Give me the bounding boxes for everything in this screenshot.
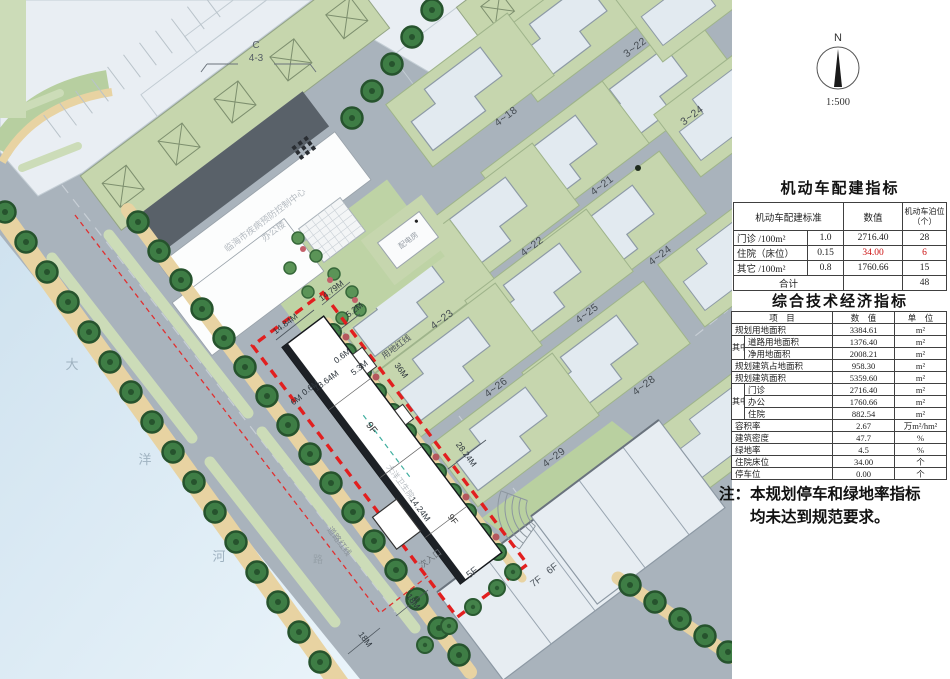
north-arrow: N 1:500 [802,26,874,110]
cell: 门诊 [745,384,833,396]
cell: % [895,444,947,456]
cell: 合计 [734,276,844,291]
river-name-char: 洋 [138,452,151,467]
scale-label: 1:500 [826,97,850,108]
table-row: 规划用地面积 3384.61 m² [732,324,947,336]
cell: 2716.40 [833,384,895,396]
note-body: 本规划停车和绿地率指标 均未达到规范要求。 [750,483,921,530]
cell: m² [895,396,947,408]
cell: m² [895,384,947,396]
cell: 0.8 [808,261,844,276]
cell: 个 [895,468,947,480]
cell: % [895,432,947,444]
cell: 道路用地面积 [745,336,833,348]
cell: 0.00 [833,468,895,480]
cell: 容积率 [732,420,833,432]
cell: 48 [903,276,947,291]
parking-table-title: 机动车配建指标 [732,177,948,198]
cell: 住院 [745,408,833,420]
river-name-char: 大 [65,357,78,372]
cell: 规划建筑占地面积 [732,360,833,372]
cell: m² [895,336,947,348]
cell: 规划用地面积 [732,324,833,336]
svg-text:C: C [252,40,259,51]
cell: 882.54 [833,408,895,420]
river-name-char: 河 [212,549,225,564]
cell: 机动车配建标准 [734,203,844,231]
cell: 办公 [745,396,833,408]
cell: 1376.40 [833,336,895,348]
cell: 34.00 [833,456,895,468]
cell: 单 位 [895,312,947,324]
cell: 2.67 [833,420,895,432]
table-row: 其它 /100m² 0.8 1760.66 15 [734,261,947,276]
cell: 0.15 [808,246,844,261]
plan-note: 注： 本规划停车和绿地率指标 均未达到规范要求。 [719,483,947,530]
cell: 2716.40 [844,231,903,246]
table-header-row: 机动车配建标准 数值 机动车泊位 （个） [734,203,947,231]
cell: m² [895,360,947,372]
cell: 其它 /100m² [734,261,808,276]
table-row: 其中 道路用地面积 1376.40 m² [732,336,947,348]
cell: 1760.66 [844,261,903,276]
economic-table: 项 目 数 值 单 位 规划用地面积 3384.61 m² 其中 道路用地面积 … [731,311,947,480]
table-row: 停车位 0.00 个 [732,468,947,480]
cell: 数值 [844,203,903,231]
north-label: N [834,32,842,44]
cell: 15 [903,261,947,276]
cell: 6 [903,246,947,261]
table-row: 办公 1760.66 m² [732,396,947,408]
site-plan-map: 配电房 临海市疾病预防控制中心 办公楼 [0,0,732,679]
table-row: 住院 882.54 m² [732,408,947,420]
road-name-char: 路 [313,553,323,566]
cell: 1.0 [808,231,844,246]
site-plan-sheet: 配电房 临海市疾病预防控制中心 办公楼 [0,0,950,679]
cell: 机动车泊位 （个） [903,203,947,231]
cell: 门诊 /100m² [734,231,808,246]
economic-table-title: 综合技术经济指标 [732,290,948,311]
cell: 停车位 [732,468,833,480]
cell: 958.30 [833,360,895,372]
table-row: 绿地率 4.5 % [732,444,947,456]
cell: 34.00 [844,246,903,261]
table-row: 规划建筑占地面积 958.30 m² [732,360,947,372]
cell: 建筑密度 [732,432,833,444]
cell: 1760.66 [833,396,895,408]
cell: 其中 [732,336,745,360]
cell: 数 值 [833,312,895,324]
cell: 其中 [732,384,745,420]
tree-symbol [635,165,641,171]
cell: m² [895,324,947,336]
cell: m² [895,408,947,420]
cell: 净用地面积 [745,348,833,360]
cell: m² [895,348,947,360]
table-row: 住院（床位） 0.15 34.00 6 [734,246,947,261]
cell: 绿地率 [732,444,833,456]
table-row: 建筑密度 47.7 % [732,432,947,444]
cell: 3384.61 [833,324,895,336]
table-row: 规划建筑面积 5359.60 m² [732,372,947,384]
svg-text:4-3: 4-3 [249,53,264,64]
cell: 规划建筑面积 [732,372,833,384]
cell: 28 [903,231,947,246]
note-prefix: 注： [719,483,750,530]
cell: 住院床位 [732,456,833,468]
table-row: 容积率 2.67 万m²/hm² [732,420,947,432]
table-header-row: 项 目 数 值 单 位 [732,312,947,324]
table-row: 门诊 /100m² 1.0 2716.40 28 [734,231,947,246]
cell: 4.5 [833,444,895,456]
table-row: 住院床位 34.00 个 [732,456,947,468]
cell: m² [895,372,947,384]
verge [0,0,26,118]
table-row: 合计 48 [734,276,947,291]
cell [844,276,903,291]
cell: 项 目 [732,312,833,324]
compass-needle [834,49,842,87]
cell: 47.7 [833,432,895,444]
cell: 万m²/hm² [895,420,947,432]
cell: 个 [895,456,947,468]
parking-table: 机动车配建标准 数值 机动车泊位 （个） 门诊 /100m² 1.0 2716.… [733,202,947,291]
table-row: 净用地面积 2008.21 m² [732,348,947,360]
table-row: 其中 门诊 2716.40 m² [732,384,947,396]
cell: 5359.60 [833,372,895,384]
cell: 住院（床位） [734,246,808,261]
cell: 2008.21 [833,348,895,360]
